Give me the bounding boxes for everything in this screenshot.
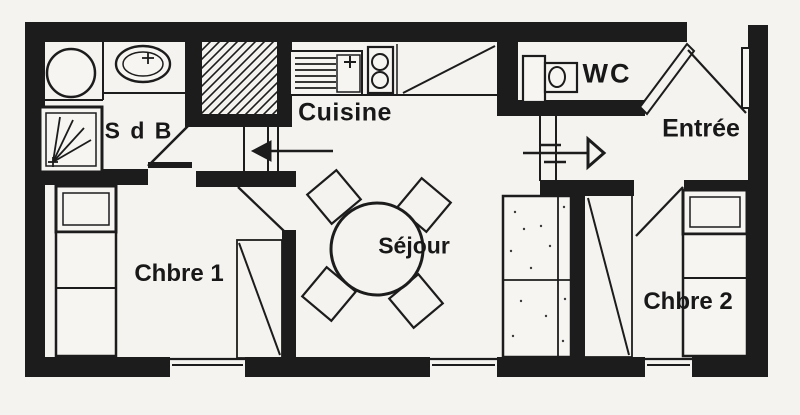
hatched-closet xyxy=(200,42,277,114)
washbasin-icon xyxy=(116,46,170,82)
hatched-closet-area xyxy=(200,42,277,114)
counter-diagonal xyxy=(403,46,495,93)
room-label-wc: WC xyxy=(583,61,632,88)
wall-top xyxy=(25,22,687,42)
room-label-chbre1: Chbre 1 xyxy=(134,262,223,286)
room-label-cuisine: Cuisine xyxy=(298,101,392,126)
kitchen-sink-icon xyxy=(290,51,362,95)
bathroom xyxy=(40,42,196,172)
wall-left xyxy=(25,22,45,377)
arrow-left-icon xyxy=(252,141,271,161)
wardrobe xyxy=(503,196,571,357)
toilet-icon xyxy=(523,56,577,102)
wall-chbre1-sejour xyxy=(282,230,296,365)
hall-direction-arrow xyxy=(252,141,333,161)
wall-sdb-right xyxy=(185,42,202,120)
bed-chbre2-icon xyxy=(683,190,747,356)
room-label-entree: Entrée xyxy=(662,117,740,142)
chbre2-closet xyxy=(585,196,632,358)
chbre1-door-swing xyxy=(238,187,284,231)
wall-sejour-chbre2 xyxy=(571,180,585,365)
washing-machine-icon xyxy=(47,49,95,97)
chbre2-elements xyxy=(585,187,747,358)
arrow-right-icon xyxy=(588,139,604,167)
wall-closet-bottom xyxy=(185,114,292,127)
sdb-door-leaf xyxy=(148,162,192,168)
wall-entree-bottom-left xyxy=(540,180,634,196)
entry-door-swing xyxy=(688,50,746,113)
chbre2-door-swing xyxy=(636,187,683,236)
room-label-sejour: Séjour xyxy=(378,235,450,258)
window-chbre2 xyxy=(645,355,692,379)
room-label-sdb: S d B xyxy=(105,120,174,143)
kitchen xyxy=(290,44,497,95)
shower-icon xyxy=(40,107,102,172)
floor-plan: S d B Cuisine WC Entrée Séjour Chbre 1 C… xyxy=(0,0,800,415)
window-chbre1 xyxy=(170,355,245,379)
bed-chbre1-icon xyxy=(56,186,116,356)
entry-door-leaf xyxy=(742,48,750,108)
floor-plan-drawing xyxy=(0,0,800,415)
room-label-chbre2: Chbre 2 xyxy=(643,290,732,314)
cooktop-icon xyxy=(368,47,393,93)
wc-door-leaf xyxy=(640,44,694,114)
chbre1-closet xyxy=(237,240,282,358)
entry-direction-arrow xyxy=(523,139,604,167)
entry-door xyxy=(688,48,750,113)
window-sejour xyxy=(430,355,497,379)
wall-wc-bottom xyxy=(497,100,645,116)
wall-hall-bottom xyxy=(196,171,296,187)
mattress xyxy=(56,232,116,356)
